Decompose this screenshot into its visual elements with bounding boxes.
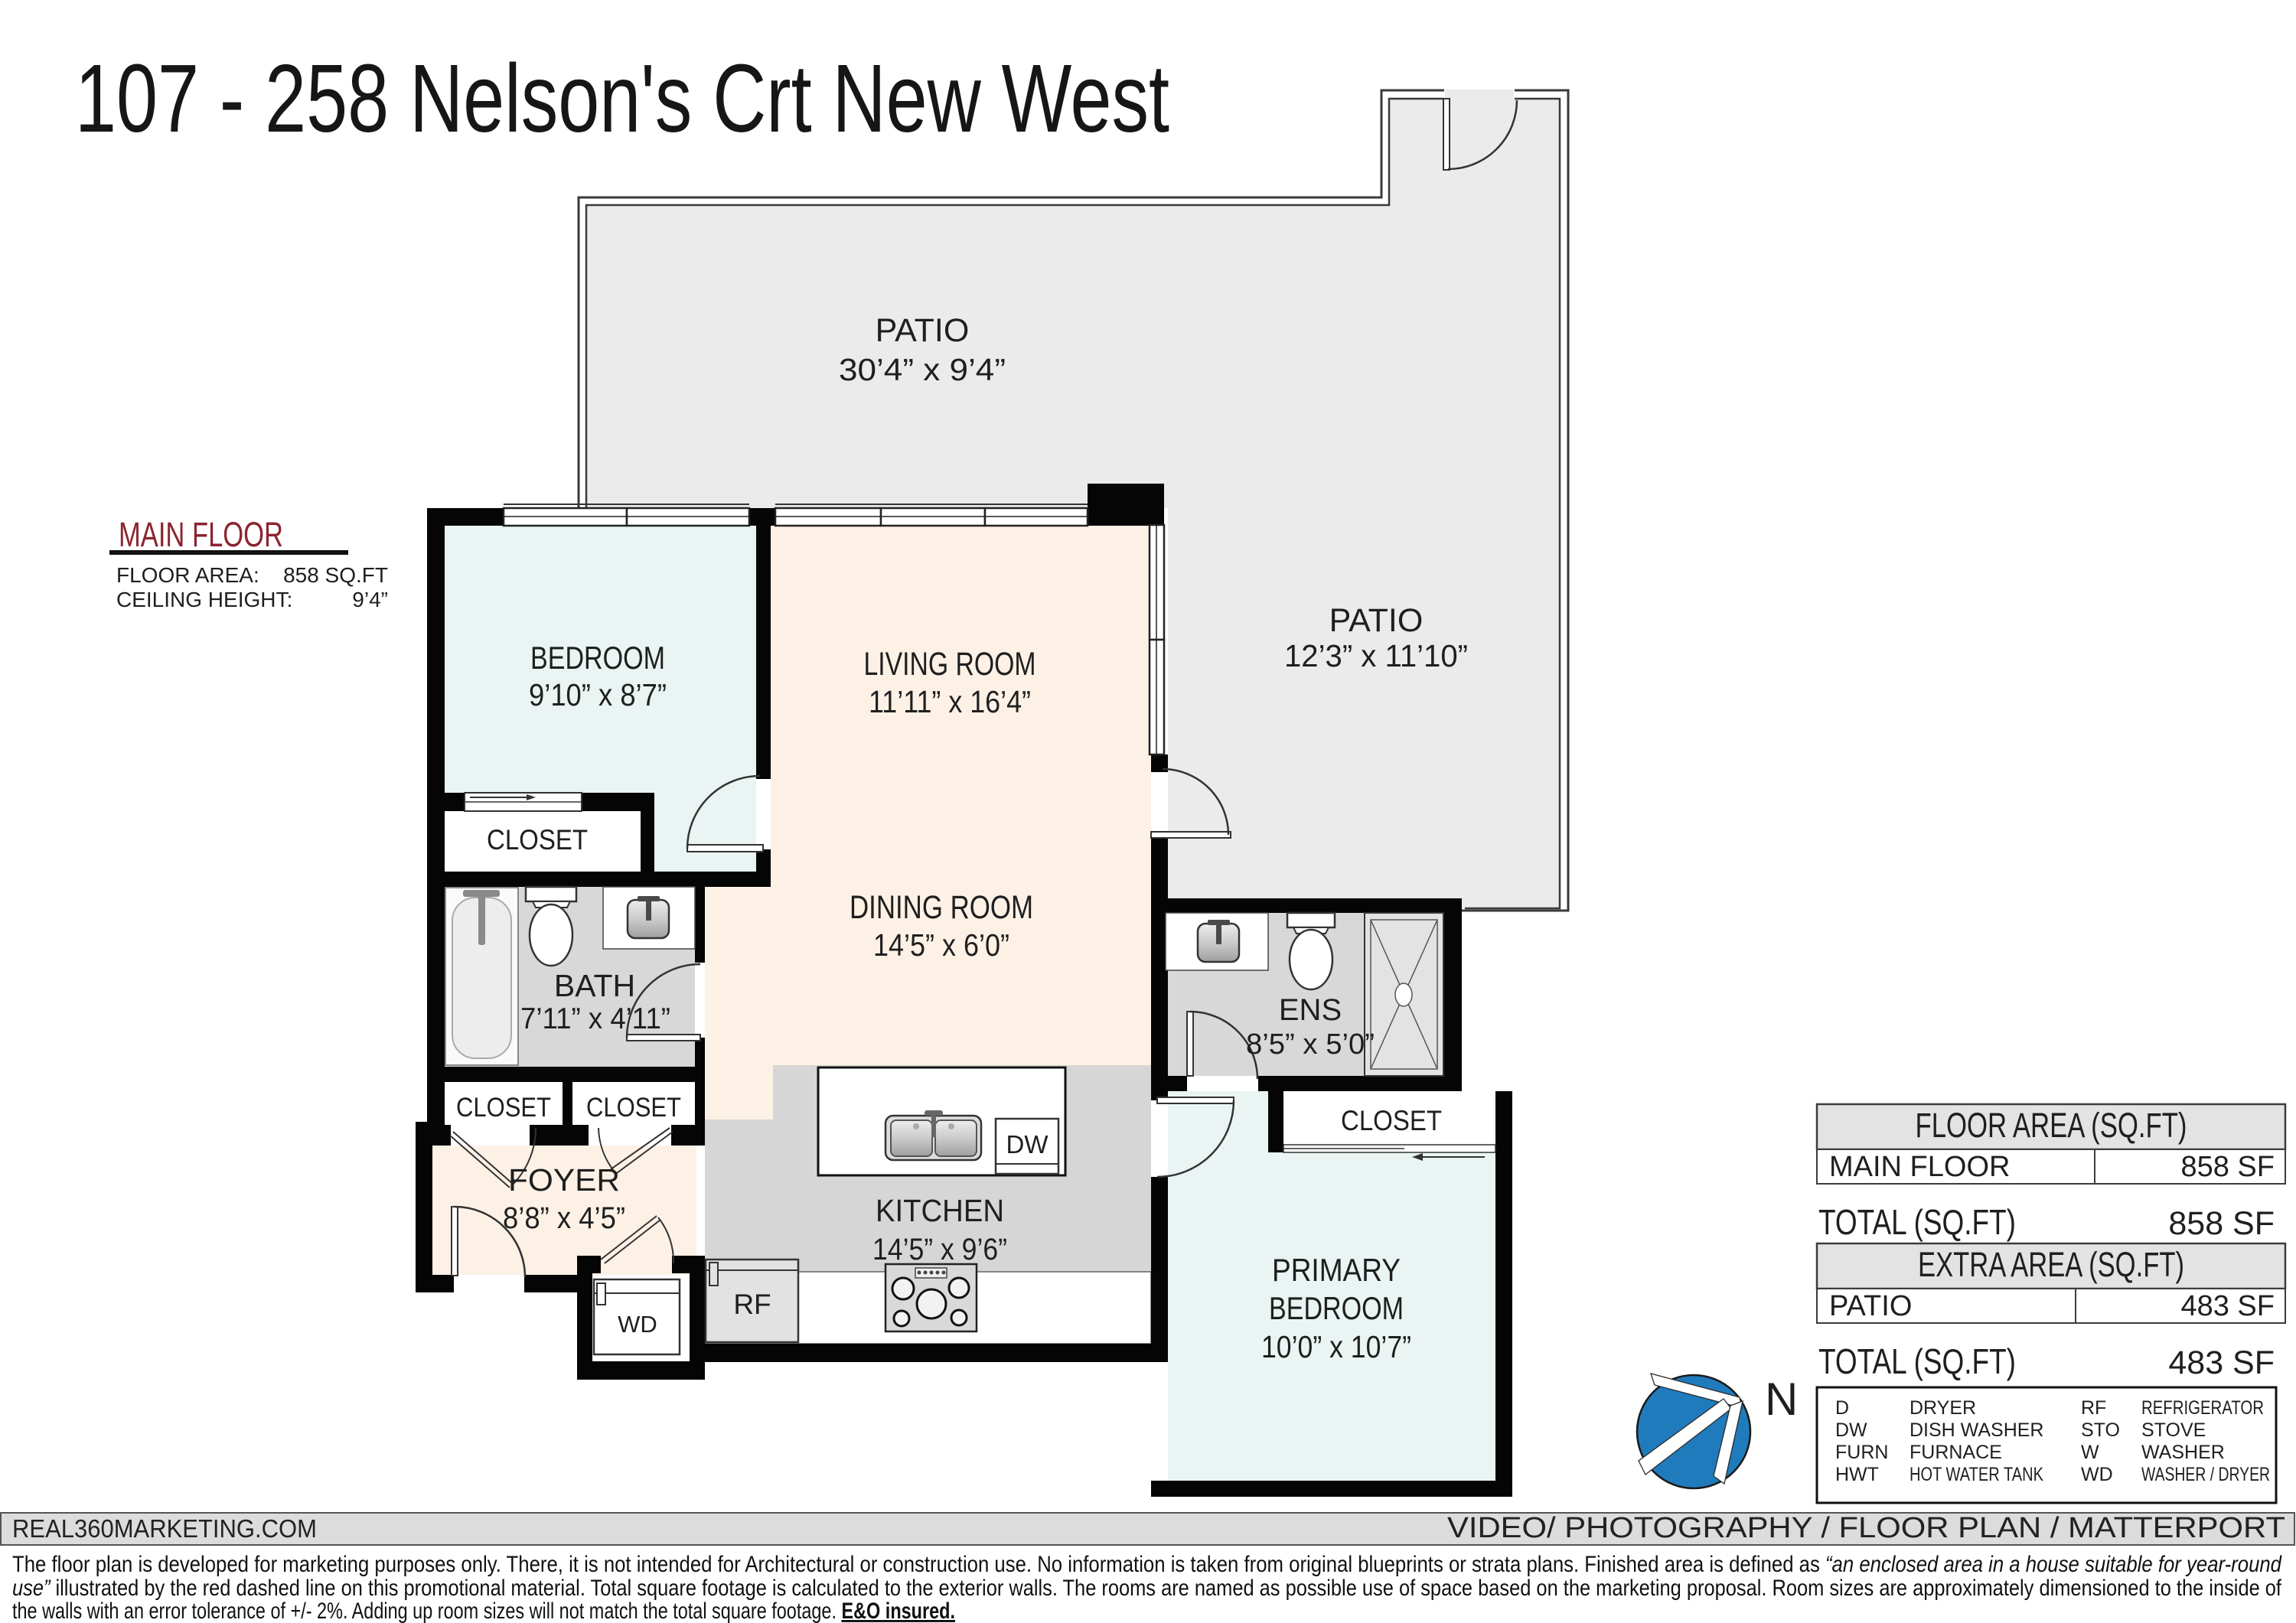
svg-text:CEILING HEIGHT:: CEILING HEIGHT: bbox=[116, 588, 292, 611]
svg-text:use” illustrated by the red da: use” illustrated by the red dashed line … bbox=[12, 1576, 2282, 1601]
svg-text:FOYER: FOYER bbox=[508, 1162, 620, 1198]
svg-text:CLOSET: CLOSET bbox=[1341, 1105, 1442, 1136]
svg-text:9’10” x 8’7”: 9’10” x 8’7” bbox=[529, 677, 667, 712]
svg-text:HWT: HWT bbox=[1835, 1464, 1879, 1485]
svg-text:REAL360MARKETING.COM: REAL360MARKETING.COM bbox=[12, 1514, 317, 1543]
svg-text:DW: DW bbox=[1835, 1419, 1867, 1441]
svg-text:STO: STO bbox=[2081, 1419, 2120, 1441]
svg-text:BEDROOM: BEDROOM bbox=[1269, 1290, 1404, 1326]
svg-text:483 SF: 483 SF bbox=[2168, 1344, 2275, 1381]
svg-text:PATIO: PATIO bbox=[1829, 1290, 1912, 1322]
svg-text:DW: DW bbox=[1006, 1130, 1049, 1159]
svg-text:WD: WD bbox=[2081, 1464, 2113, 1485]
svg-text:MAIN FLOOR: MAIN FLOOR bbox=[119, 515, 283, 554]
svg-text:DRYER: DRYER bbox=[1910, 1397, 1976, 1419]
svg-text:STOVE: STOVE bbox=[2141, 1419, 2206, 1441]
svg-text:12’3” x 11’10”: 12’3” x 11’10” bbox=[1284, 638, 1468, 673]
svg-text:PRIMARY: PRIMARY bbox=[1272, 1252, 1401, 1288]
svg-text:D: D bbox=[1835, 1397, 1849, 1419]
svg-text:CLOSET: CLOSET bbox=[487, 824, 588, 855]
svg-text:CLOSET: CLOSET bbox=[586, 1093, 681, 1123]
svg-text:ENS: ENS bbox=[1279, 993, 1342, 1027]
svg-text:The floor plan is developed fo: The floor plan is developed for marketin… bbox=[12, 1552, 2282, 1577]
svg-text:TOTAL (SQ.FT): TOTAL (SQ.FT) bbox=[1818, 1202, 2016, 1242]
svg-text:WASHER: WASHER bbox=[2141, 1442, 2225, 1463]
svg-text:8’8” x 4’5”: 8’8” x 4’5” bbox=[503, 1201, 625, 1235]
svg-text:11’11” x 16’4”: 11’11” x 16’4” bbox=[869, 684, 1031, 719]
svg-text:9’4”: 9’4” bbox=[352, 588, 388, 611]
svg-text:FURN: FURN bbox=[1835, 1442, 1888, 1463]
svg-text:BATH: BATH bbox=[554, 968, 635, 1003]
svg-text:EXTRA AREA (SQ.FT): EXTRA AREA (SQ.FT) bbox=[1918, 1245, 2184, 1284]
svg-text:DISH WASHER: DISH WASHER bbox=[1910, 1419, 2043, 1441]
svg-text:FURNACE: FURNACE bbox=[1910, 1442, 2002, 1463]
svg-text:858 SF: 858 SF bbox=[2168, 1205, 2275, 1242]
svg-text:483 SF: 483 SF bbox=[2180, 1290, 2275, 1322]
svg-text:FLOOR AREA:: FLOOR AREA: bbox=[116, 563, 259, 587]
svg-text:RF: RF bbox=[2081, 1397, 2106, 1419]
svg-text:KITCHEN: KITCHEN bbox=[876, 1193, 1004, 1228]
svg-text:VIDEO/ PHOTOGRAPHY / FLOOR PLA: VIDEO/ PHOTOGRAPHY / FLOOR PLAN / MATTER… bbox=[1447, 1512, 2285, 1544]
svg-text:WASHER / DRYER: WASHER / DRYER bbox=[2141, 1464, 2270, 1485]
svg-text:30’4” x 9’4”: 30’4” x 9’4” bbox=[839, 352, 1006, 387]
svg-text:LIVING ROOM: LIVING ROOM bbox=[864, 646, 1036, 683]
svg-text:858 SQ.FT: 858 SQ.FT bbox=[283, 563, 388, 587]
svg-text:8’5” x 5’0”: 8’5” x 5’0” bbox=[1246, 1028, 1375, 1061]
svg-text:DINING ROOM: DINING ROOM bbox=[850, 889, 1033, 926]
svg-text:the walls with an error tolera: the walls with an error tolerance of +/-… bbox=[12, 1599, 955, 1623]
svg-text:10’0” x 10’7”: 10’0” x 10’7” bbox=[1261, 1329, 1411, 1364]
svg-text:W: W bbox=[2081, 1442, 2099, 1463]
svg-text:BEDROOM: BEDROOM bbox=[530, 640, 665, 676]
svg-text:7’11” x 4’11”: 7’11” x 4’11” bbox=[520, 1002, 670, 1035]
svg-text:14’5” x 6’0”: 14’5” x 6’0” bbox=[873, 927, 1009, 963]
svg-text:TOTAL (SQ.FT): TOTAL (SQ.FT) bbox=[1818, 1341, 2016, 1381]
svg-text:PATIO: PATIO bbox=[876, 312, 970, 349]
svg-text:107 - 258 Nelson's Crt New Wes: 107 - 258 Nelson's Crt New West bbox=[75, 44, 1169, 152]
svg-text:CLOSET: CLOSET bbox=[456, 1093, 551, 1123]
svg-text:REFRIGERATOR: REFRIGERATOR bbox=[2141, 1397, 2264, 1419]
svg-text:WD: WD bbox=[618, 1311, 657, 1338]
svg-text:MAIN FLOOR: MAIN FLOOR bbox=[1829, 1151, 2010, 1183]
svg-text:14’5” x 9’6”: 14’5” x 9’6” bbox=[872, 1233, 1007, 1266]
svg-text:PATIO: PATIO bbox=[1329, 602, 1424, 639]
svg-text:RF: RF bbox=[733, 1289, 771, 1320]
svg-text:HOT WATER TANK: HOT WATER TANK bbox=[1910, 1464, 2043, 1485]
svg-text:858 SF: 858 SF bbox=[2180, 1151, 2275, 1183]
svg-text:FLOOR AREA (SQ.FT): FLOOR AREA (SQ.FT) bbox=[1916, 1106, 2187, 1145]
svg-text:N: N bbox=[1765, 1374, 1798, 1425]
